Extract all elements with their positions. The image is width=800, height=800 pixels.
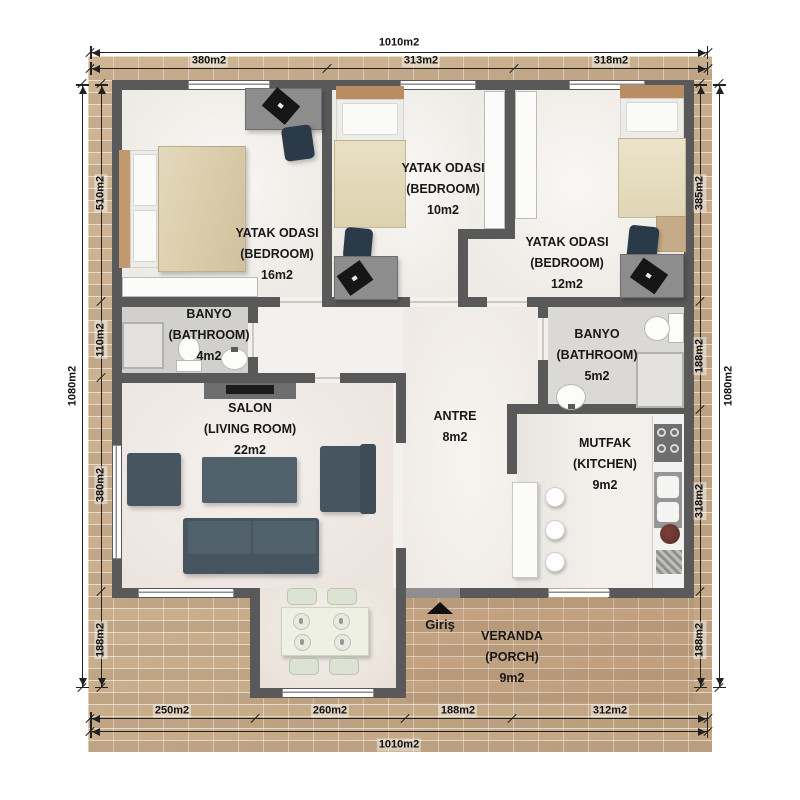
kitchen-sink-basin [657,502,679,522]
room-label-bathroom-right: BANYO (BATHROOM) 5m2 [557,324,638,387]
window-living-left [113,445,121,559]
stove-burner [657,428,666,437]
wall-nook-left [250,588,260,698]
toilet-right [644,316,670,341]
tv-icon [226,385,274,394]
dimension-label: 380m2 [190,55,228,68]
stove-burner [670,444,679,453]
entrance-arrow-icon [427,602,453,614]
shower-right [636,352,684,408]
room-name: YATAK ODASI [525,232,608,253]
wall-bottom-right-a [460,588,548,598]
wall-salon-right-a [396,373,406,443]
bed-double-blanket [158,146,246,272]
room-name: BANYO [557,324,638,345]
floor-plan: YATAK ODASI (BEDROOM) 16m2 YATAK ODASI (… [0,0,800,800]
window-bedroom-middle [400,81,476,89]
bed-single-pillow-right [626,102,678,132]
door-bathroom-left [252,323,254,357]
coffee-table [202,457,297,503]
bed-double-pillow-1 [133,154,157,206]
room-name: YATAK ODASI [235,223,318,244]
armchair-right-back [360,444,376,514]
dining-chair [327,588,357,605]
shower-left [122,322,164,369]
place-setting [293,613,310,630]
bed-single-headboard-right [620,85,684,98]
room-label-kitchen: MUTFAK (KITCHEN) 9m2 [573,433,637,496]
dimension-label: 312m2 [591,705,629,718]
dimension-label: 318m2 [592,55,630,68]
room-area: 12m2 [525,274,608,295]
sofa-cushion-1 [188,521,251,554]
dining-chair [287,588,317,605]
room-name: MUTFAK [573,433,637,454]
window-kitchen-bottom [548,589,610,597]
dining-chair [289,658,319,675]
bar-stool [545,520,565,540]
wall-bed16-bed10 [322,89,332,307]
rug-bedroom-right [656,216,686,252]
dimension-label: 1010m2 [377,739,421,752]
bar-stool [545,487,565,507]
kitchen-mat [656,550,682,574]
wall-nook-right [396,548,406,698]
place-setting [294,634,311,651]
wall-salon-top-b [340,373,403,383]
dimension-line-top-segments [90,68,708,69]
kitchen-sink-basin [657,476,679,498]
plant-icon [660,524,680,544]
dimension-label: 380m2 [95,466,108,504]
door-bedroom-right [487,301,527,303]
bed-single-blanket-right [618,138,686,218]
room-area: 5m2 [557,366,638,387]
room-label-porch: VERANDA (PORCH) 9m2 [481,626,543,689]
room-name: BANYO [169,304,250,325]
dimension-label: 250m2 [153,705,191,718]
room-area: 22m2 [204,440,296,461]
room-label-bathroom-left: BANYO (BATHROOM) 4m2 [169,304,250,367]
room-area: 9m2 [573,475,637,496]
bed-single-blanket-middle [334,140,406,228]
entrance-door [406,588,460,598]
window-nook-bottom [282,689,374,697]
room-name: ANTRE [433,406,476,427]
entrance-label: Giriş [425,617,455,632]
dining-chair [329,658,359,675]
room-label-living-room: SALON (LIVING ROOM) 22m2 [204,398,296,461]
door-bedroom-left [280,301,322,303]
door-bathroom-right [542,318,544,360]
room-label-bedroom-middle: YATAK ODASI (BEDROOM) 10m2 [401,158,484,221]
dimension-label: 188m2 [694,337,707,375]
room-type: (BEDROOM) [401,179,484,200]
kitchen-island [512,482,538,578]
dimension-label: 385m2 [694,174,707,212]
bed-double-headboard [119,150,130,268]
room-type: (LIVING ROOM) [204,419,296,440]
bed-double-pillow-2 [133,210,157,262]
office-chair-icon [281,124,315,162]
bed-single-headboard-middle [336,86,404,99]
window-living-bottom [138,589,234,597]
wall-bath4-right-a [248,297,258,323]
dimension-label: 313m2 [402,55,440,68]
dimension-label: 188m2 [439,705,477,718]
room-name: SALON [204,398,296,419]
dimension-label: 1010m2 [377,37,421,50]
wardrobe-middle-left [484,91,505,229]
stove-burner [670,428,679,437]
armchair-left [127,453,181,506]
armchair-right [320,446,364,512]
dimension-label: 1080m2 [723,364,736,408]
room-type: (BATHROOM) [557,345,638,366]
toilet-right-tank [668,313,684,343]
room-type: (BATHROOM) [169,325,250,346]
room-area: 10m2 [401,200,484,221]
place-setting [333,613,350,630]
dimension-label: 510m2 [95,174,108,212]
dimension-line-right-total [719,84,720,688]
room-type: (KITCHEN) [573,454,637,475]
wall-salon-top-a [112,373,315,383]
sofa-cushion-2 [253,521,316,554]
dimension-label: 260m2 [311,705,349,718]
room-type: (PORCH) [481,647,543,668]
dimension-line-bottom-total [90,731,708,732]
room-label-hallway: ANTRE 8m2 [433,406,476,448]
dimension-label: 1080m2 [67,364,80,408]
wall-stub-v [458,229,468,307]
dimension-line-left-total [82,84,83,688]
dimension-line-top-total [90,52,708,53]
dimension-line-bottom-segments [90,718,708,719]
sink-right-tap [568,404,575,409]
room-label-bedroom-right: YATAK ODASI (BEDROOM) 12m2 [525,232,608,295]
wall-bottom-right-b [608,588,694,598]
dimension-label: 188m2 [694,621,707,659]
wall-bath5-left-a [538,297,548,318]
room-area: 16m2 [235,265,318,286]
bar-stool [545,552,565,572]
dimension-label: 318m2 [694,482,707,520]
room-label-bedroom-left: YATAK ODASI (BEDROOM) 16m2 [235,223,318,286]
wall-kitchen-left [507,404,517,474]
wall-bath4-right-b [248,357,258,373]
wardrobe-middle-right [515,91,537,219]
room-name: VERANDA [481,626,543,647]
dimension-label: 188m2 [95,621,108,659]
wall-bed10-bed12 [505,89,515,237]
room-area: 4m2 [169,346,250,367]
wall-mid-d [527,297,694,307]
dining-table [281,607,369,656]
room-name: YATAK ODASI [401,158,484,179]
room-type: (BEDROOM) [235,244,318,265]
door-bedroom-middle [410,301,458,303]
room-area: 8m2 [433,427,476,448]
room-area: 9m2 [481,668,543,689]
room-type: (BEDROOM) [525,253,608,274]
place-setting [334,634,351,651]
bed-single-pillow-middle [342,103,398,135]
door-living-room [315,377,340,379]
stove-burner [657,444,666,453]
dimension-label: 110m2 [95,321,108,359]
